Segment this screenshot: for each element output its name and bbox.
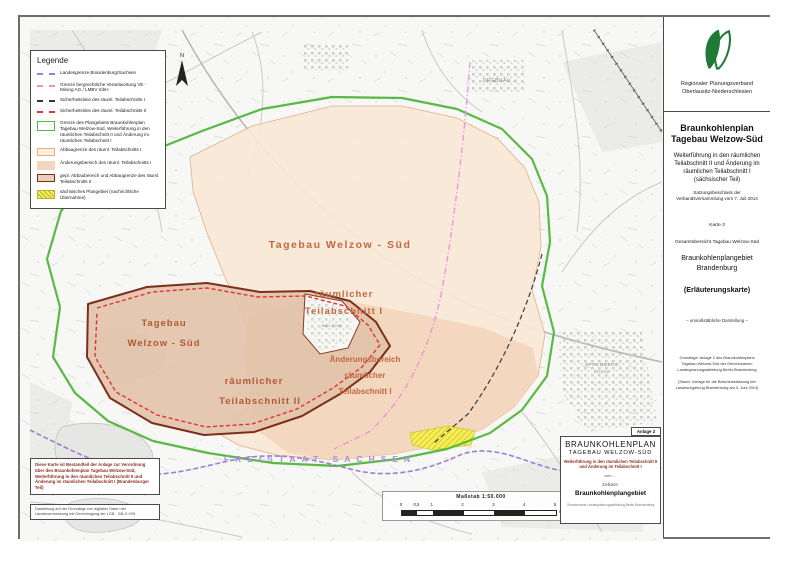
safety-line-2-swatch-icon [37, 111, 55, 116]
legend-item: Grenze des Plangebiets Braunkohlenplan T… [37, 120, 160, 144]
map-label-aenderung-a: Änderungsbereich [330, 355, 401, 364]
panel-resolution: Satzungsbeschluss der Verbandsversammlun… [674, 190, 760, 203]
panel-scale-note: – unmaßstäbliche Darstellung – [664, 318, 770, 323]
scale-bar-segments [401, 510, 557, 516]
org-line1: Regionaler Planungsverband [664, 80, 770, 88]
legend-item: Sicherheitslinie des räuml. Teilabschnit… [37, 108, 160, 116]
town-label-drebkau: DREBKAU [483, 78, 511, 84]
panel-region-line1: Braunkohlenplangebiet [664, 254, 770, 263]
map-label-tagebau-ta2-a: Tagebau [141, 318, 186, 329]
planungsverband-logo-icon [700, 27, 734, 71]
ordinance-note-text: Diese Karte ist Bestandteil der Anlage z… [35, 462, 155, 491]
scale-tick: 0 [400, 502, 402, 507]
saxon-area-swatch-icon [37, 190, 55, 199]
scale-tick: 2 [461, 502, 463, 507]
panel-subtitle: Weiterführung in den räumlichen Teilabsc… [671, 152, 763, 184]
legend-item: sächsisches Plangebiet (nachrichtliche Ü… [37, 189, 160, 201]
map-label-ta1-a: räumlicher [315, 289, 374, 300]
map-label-aenderung-c: Teilabschnitt I [338, 387, 391, 396]
legend-item: gepl. Abbaubereich und Abbaugrenze des r… [37, 173, 160, 185]
map-label-tagebau-ta2-b: Welzow - Süd [127, 338, 200, 349]
legend-item: Grenze bergrechtliche Verantwortung VE -… [37, 82, 160, 94]
mining-limit-ta1-swatch-icon [37, 148, 55, 156]
legend-item-label: Grenze des Plangebiets Braunkohlenplan T… [60, 120, 160, 144]
scale-tick: 5 [554, 502, 556, 507]
legend-item: Sicherheitslinie des räuml. Teilabschnit… [37, 97, 160, 105]
panel-overview: Gesamtübersicht Tagebau Welzow-Süd [674, 240, 760, 247]
title-panel: Regionaler Planungsverband Oberlausitz-N… [663, 17, 770, 537]
map-label-freistaat-sachsen: FREISTAAT SACHSEN [224, 454, 416, 464]
map-label-ta1-b: Teilabschnitt I [305, 306, 383, 317]
change-area-swatch-icon [37, 161, 55, 170]
legend-title: Legende [37, 56, 160, 65]
map-label-aenderung-b: räumlicher [345, 371, 386, 380]
map-label-ta2-b: Teilabschnitt II [219, 396, 301, 407]
plan-box-ziel-label: Zielkarte: [563, 482, 658, 487]
page: Tagebau Welzow - Süd räumlicher Teilabsc… [0, 0, 800, 566]
legend-item-label: Änderungsbereich des räuml. Teilabschnit… [60, 160, 151, 166]
map-sheet-frame: Tagebau Welzow - Süd räumlicher Teilabsc… [18, 15, 770, 539]
scale-segment [417, 511, 432, 515]
legend-item-label: Sicherheitslinie des räuml. Teilabschnit… [60, 97, 145, 103]
map-label-tagebau-ta1: Tagebau Welzow - Süd [269, 239, 412, 251]
legend-item-label: sächsisches Plangebiet (nachrichtliche Ü… [60, 189, 160, 201]
legend-item-label: Abbaugrenze des räuml. Teilabschnitts I [60, 147, 141, 153]
ordinance-note-box: Diese Karte ist Bestandteil der Anlage z… [30, 458, 160, 495]
svg-text:N: N [180, 53, 184, 59]
legend-item: Änderungsbereich des räuml. Teilabschnit… [37, 160, 160, 170]
credit-text: Darstellung auf der Grundlage von digita… [35, 507, 155, 517]
state-border-swatch-icon [37, 73, 55, 78]
scale-segment [464, 511, 495, 515]
map-label-ta2-a: räumlicher [225, 376, 284, 387]
panel-title-line2: Tagebau Welzow-Süd [664, 134, 770, 145]
panel-stand: (Stand: Vorlage für die Beschlussfassung… [672, 379, 762, 390]
scale-tick: 0,5 [413, 502, 419, 507]
scale-title: Maßstab 1:50.000 [383, 494, 579, 500]
plan-box-vom: vom .... [563, 473, 658, 478]
plan-box-description: Weiterführung in den räumlichen Teilabsc… [563, 459, 658, 470]
scale-tick: 3 [492, 502, 494, 507]
plan-box-subtitle: TAGEBAU WELZOW-SÜD [563, 450, 658, 456]
legend-item: Landesgrenze Brandenburg/Sachsen [37, 70, 160, 78]
legend-box: Legende Landesgrenze Brandenburg/Sachsen… [30, 50, 166, 209]
plan-boundary-swatch-icon [37, 121, 55, 131]
plan-box-title: BRAUNKOHLENPLAN [563, 440, 658, 449]
org-line2: Oberlausitz-Niederschlesien [664, 88, 770, 96]
scale-bar: Maßstab 1:50.000 0 0,5 1 2 3 4 5 Kilomet… [382, 491, 580, 521]
legend-item-label: Landesgrenze Brandenburg/Sachsen [60, 70, 136, 76]
mining-area-ta2-swatch-icon [37, 174, 55, 182]
plan-box-footer: Gemeinsame Landesplanungsabteilung Berli… [563, 503, 658, 507]
legend-item-label: Grenze bergrechtliche Verantwortung VE -… [60, 82, 160, 94]
plan-box-ziel-value: Braunkohlenplangebiet [563, 490, 658, 497]
scale-tick: 1 [431, 502, 433, 507]
legend-item-label: gepl. Abbaubereich und Abbaugrenze des r… [60, 173, 160, 185]
mining-responsibility-swatch-icon [37, 85, 55, 90]
panel-basis: Grundlage: Anlage 2 des Braunkohlenplans… [672, 355, 762, 372]
panel-kind: (Erläuterungskarte) [664, 285, 770, 294]
scale-segment [494, 511, 525, 515]
scale-segment [525, 511, 556, 515]
panel-map-number: Karte 3 [664, 223, 770, 228]
legend-item-label: Sicherheitslinie des räuml. Teilabschnit… [60, 108, 146, 114]
plan-title-box: BRAUNKOHLENPLAN TAGEBAU WELZOW-SÜD Weite… [560, 436, 661, 524]
panel-region-line2: Brandenburg [664, 264, 770, 273]
town-label-grodk: GRODK [594, 370, 610, 374]
panel-title-line1: Braunkohlenplan [664, 123, 770, 134]
scale-tick: 4 [523, 502, 525, 507]
scale-segment [433, 511, 464, 515]
panel-org-section: Regionaler Planungsverband Oberlausitz-N… [664, 17, 770, 112]
credit-box: Darstellung auf der Grundlage von digita… [30, 504, 160, 520]
town-label-spremberg: SPREMBERG [585, 362, 619, 367]
town-label-welzow: WELZOW [322, 323, 342, 328]
safety-line-1-swatch-icon [37, 100, 55, 105]
scale-segment [402, 511, 417, 515]
legend-item: Abbaugrenze des räuml. Teilabschnitts I [37, 147, 160, 156]
anlage-badge: Anlage 2 [631, 427, 661, 436]
